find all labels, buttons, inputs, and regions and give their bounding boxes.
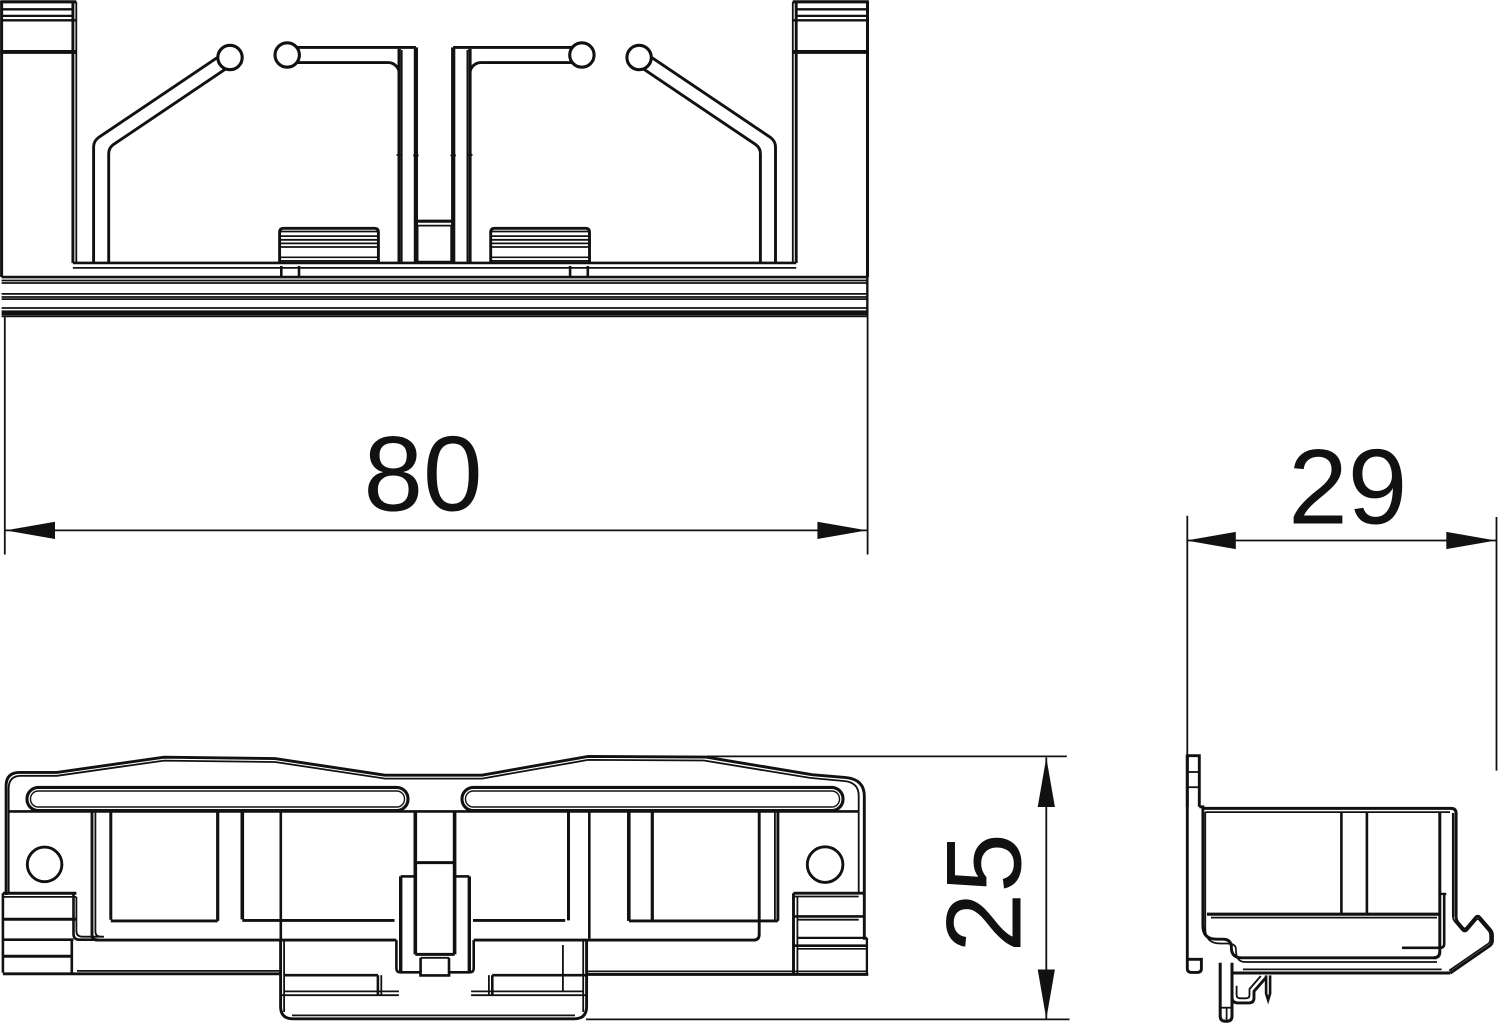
svg-text:29: 29 bbox=[1288, 427, 1407, 547]
svg-text:25: 25 bbox=[924, 833, 1044, 952]
svg-text:80: 80 bbox=[363, 414, 482, 534]
